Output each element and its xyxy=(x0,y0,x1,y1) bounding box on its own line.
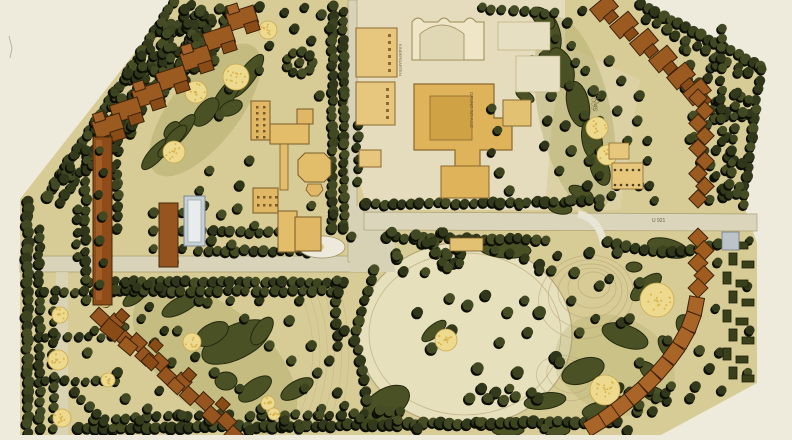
svg-text:KINDERGARTEN: KINDERGARTEN xyxy=(398,44,403,76)
svg-text:U 921: U 921 xyxy=(652,218,666,224)
svg-text:GRUND SCHULE: GRUND SCHULE xyxy=(469,92,474,128)
